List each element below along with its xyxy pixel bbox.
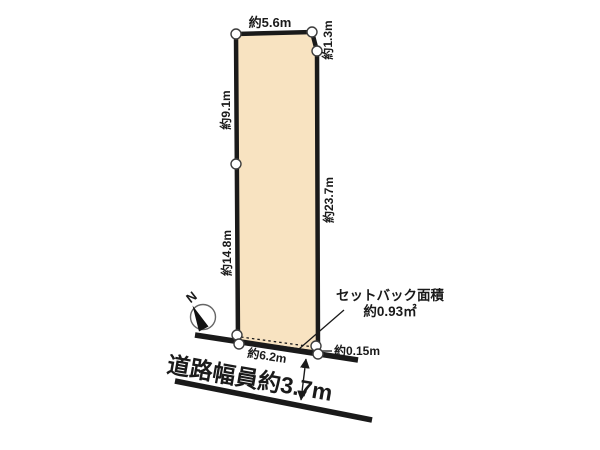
setback-offset-label: 約0.15m bbox=[334, 343, 380, 358]
corner-marker-top-left bbox=[231, 29, 241, 39]
corner-marker-bottom-right-lower bbox=[313, 349, 323, 359]
setback-area-label: 約0.93㎡ bbox=[363, 303, 417, 319]
plot-svg: N 約5.6m 約1.3m 約9.1m 約14.8m 約23.7m 約6.2m … bbox=[0, 0, 600, 450]
compass: N bbox=[183, 288, 215, 331]
setback-title-label: セットバック面積 bbox=[336, 287, 444, 303]
corner-marker-bottom-left-upper bbox=[232, 330, 242, 340]
edge-label-top: 約5.6m bbox=[249, 15, 292, 30]
corner-marker-top-right bbox=[307, 27, 317, 37]
compass-north-label: N bbox=[183, 288, 200, 306]
edge-label-top-right: 約1.3m bbox=[320, 20, 335, 59]
edge-label-left-upper: 約9.1m bbox=[218, 90, 233, 129]
land-plot-diagram: N 約5.6m 約1.3m 約9.1m 約14.8m 約23.7m 約6.2m … bbox=[0, 0, 600, 450]
parcel-polygon bbox=[236, 32, 318, 353]
corner-marker-left-mid bbox=[231, 159, 241, 169]
edge-label-right: 約23.7m bbox=[321, 177, 336, 223]
edge-label-left-lower: 約14.8m bbox=[219, 230, 234, 276]
corner-marker-bottom-left-lower bbox=[234, 339, 244, 349]
